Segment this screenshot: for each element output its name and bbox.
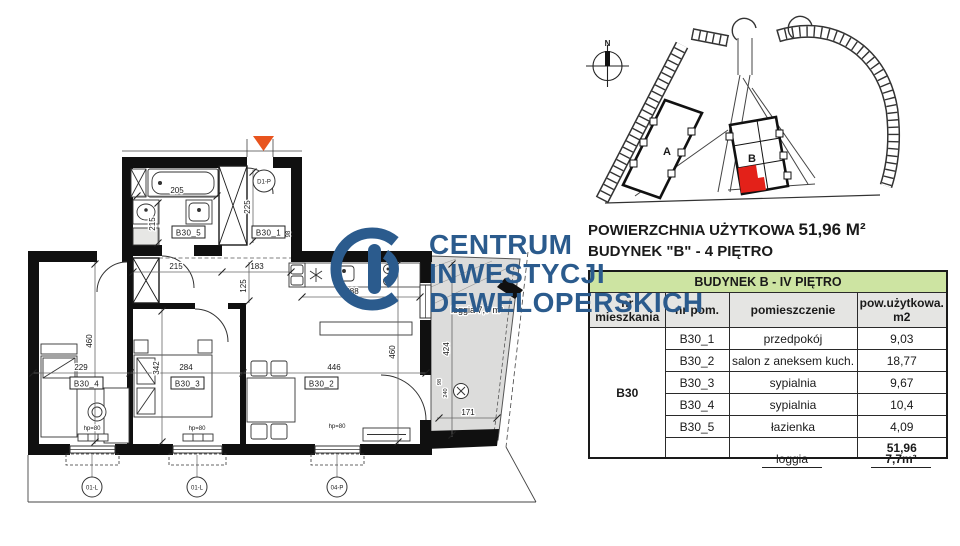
radiator-icon: [78, 434, 108, 441]
entry-door-tag: D1-P: [257, 180, 271, 186]
dim-living-width: 446: [327, 363, 341, 372]
window-tag: 04-P: [331, 486, 344, 492]
room-number: B30_4: [665, 394, 729, 416]
col-header-area: pow.użytkowa. m2: [857, 293, 947, 328]
watermark-text: CENTRUM INWESTYCJI DEWELOPERSKICH: [429, 230, 704, 317]
room-area: 10,4: [857, 394, 947, 416]
sill-label: hp=80: [84, 426, 102, 432]
watermark-line1: CENTRUM: [429, 230, 704, 259]
room-name: przedpokój: [729, 328, 857, 350]
watermark-logo: CENTRUM INWESTYCJI DEWELOPERSKICH: [330, 224, 704, 317]
dim-loggia-width: 171: [461, 408, 475, 417]
room-area: 9,67: [857, 372, 947, 394]
room-name: łazienka: [729, 416, 857, 438]
room-label-bedroom-a: B30_3: [175, 380, 200, 389]
room-number: B30_5: [665, 416, 729, 438]
room-name: salon z aneksem kuch.: [729, 350, 857, 372]
usable-area-value: 51,96 M²: [799, 220, 866, 239]
sill-label: hp=80: [329, 424, 347, 430]
site-building-b: B: [726, 117, 791, 194]
fridge-icon: [310, 268, 322, 282]
dim-loggia-depth: 424: [442, 342, 451, 356]
table-row: B30 B30_1 przedpokój 9,03: [589, 328, 947, 350]
dim-loggia-door-h: 240: [443, 388, 449, 397]
dim-living-depth: 460: [388, 345, 397, 359]
north-compass-icon: [586, 45, 629, 87]
dining-table-icon: [247, 378, 295, 422]
dim-bedroom-b-width: 229: [74, 363, 88, 372]
dim-corridor-width: 125: [239, 279, 248, 293]
entry-marker-icon: [253, 136, 274, 151]
room-label-bathroom: B30_5: [176, 229, 201, 238]
room-label-bedroom-b: B30_4: [74, 380, 99, 389]
dim-bath-depth: 215: [148, 217, 157, 231]
dim-bedroom-a-depth: 342: [152, 361, 161, 375]
site-plan: N: [580, 0, 960, 215]
apartment-number: B30: [589, 328, 665, 459]
room-area: 4,09: [857, 416, 947, 438]
dim-loggia-door-w: 98: [437, 379, 443, 385]
building-a-label: A: [663, 146, 671, 158]
dim-corridor-b: 183: [250, 262, 264, 271]
loggia-note-label: loggia: [762, 452, 822, 468]
room-name: sypialnia: [729, 394, 857, 416]
building-b-label: B: [748, 153, 756, 165]
window-tag: 01-L: [86, 486, 99, 492]
room-number: B30_3: [665, 372, 729, 394]
watermark-line2: INWESTYCJI: [429, 259, 704, 288]
room-label-hall: B30_1: [256, 229, 281, 238]
dim-hall-width: 98: [286, 230, 292, 237]
window-tag: 01-L: [191, 486, 204, 492]
sill-label: hp=80: [189, 426, 207, 432]
room-number: B30_2: [665, 350, 729, 372]
loggia-note: loggia 7,7m²: [588, 452, 946, 468]
radiator-icon: [183, 434, 213, 441]
north-label: N: [605, 39, 611, 48]
offer-sheet: 205 215 215 183 125 225 98 229 460 284 3…: [0, 0, 960, 546]
room-name: sypialnia: [729, 372, 857, 394]
loggia-note-value: 7,7m²: [871, 452, 930, 468]
col-header-name: pomieszczenie: [729, 293, 857, 328]
dim-bath-width: 205: [170, 186, 184, 195]
developer-logo-icon: [330, 224, 422, 316]
dim-corridor-a: 215: [169, 262, 183, 271]
dim-hall-depth: 225: [243, 200, 252, 214]
room-label-living: B30_2: [309, 380, 334, 389]
room-area: 9,03: [857, 328, 947, 350]
room-area: 18,77: [857, 350, 947, 372]
dim-bedroom-b-depth: 460: [85, 334, 94, 348]
room-number: B30_1: [665, 328, 729, 350]
watermark-line3: DEWELOPERSKICH: [429, 288, 704, 317]
dim-bedroom-a-width: 284: [179, 363, 193, 372]
